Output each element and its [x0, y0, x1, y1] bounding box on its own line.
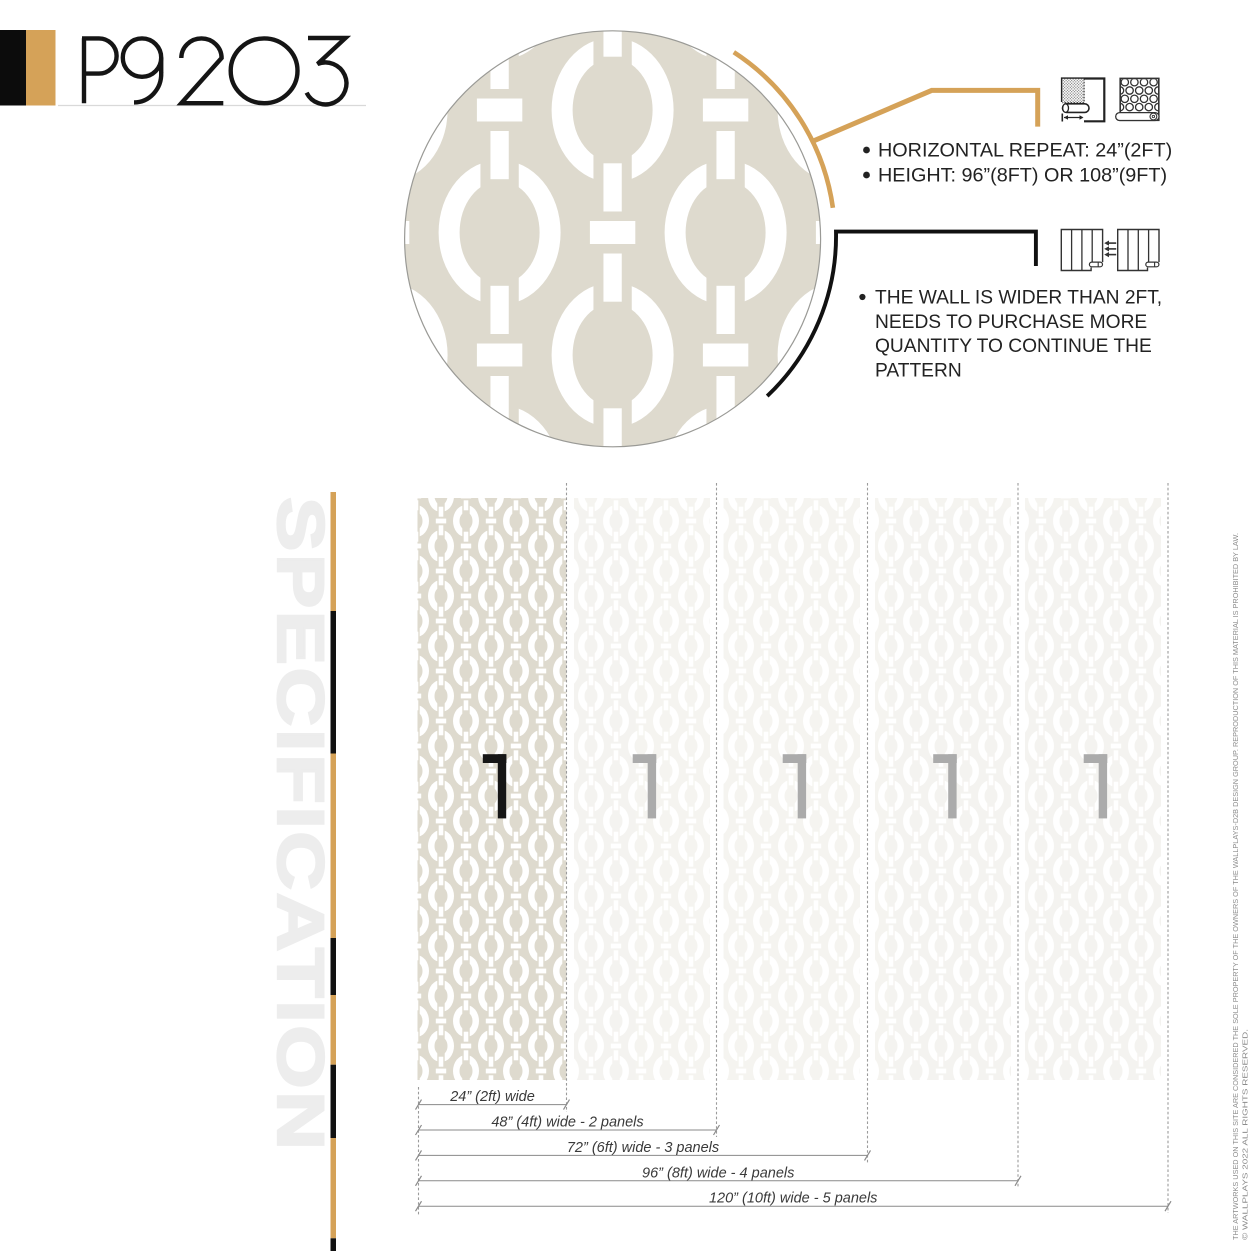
svg-text:72” (6ft) wide - 3 panels: 72” (6ft) wide - 3 panels [567, 1140, 719, 1156]
svg-text:© WALLPLAYS 2022 ALL RIGHTS RE: © WALLPLAYS 2022 ALL RIGHTS RESERVED. [1241, 1029, 1250, 1240]
svg-text:SPECIFICATION: SPECIFICATION [264, 497, 338, 1153]
svg-text:24” (2ft) wide: 24” (2ft) wide [449, 1089, 535, 1105]
svg-text:THE WALL IS WIDER THAN 2FT,: THE WALL IS WIDER THAN 2FT, [875, 288, 1162, 309]
svg-text:120” (10ft) wide - 5 panels: 120” (10ft) wide - 5 panels [709, 1191, 877, 1207]
svg-text:PATTERN: PATTERN [875, 360, 962, 381]
svg-text:HORIZONTAL REPEAT: 24”(2FT): HORIZONTAL REPEAT: 24”(2FT) [878, 140, 1172, 162]
svg-text:96” (8ft) wide - 4 panels: 96” (8ft) wide - 4 panels [642, 1165, 794, 1181]
svg-text:HEIGHT: 96”(8FT) OR 108”(9FT): HEIGHT: 96”(8FT) OR 108”(9FT) [878, 165, 1167, 187]
svg-text:THE ARTWORKS USED ON THIS SITE: THE ARTWORKS USED ON THIS SITE ARE CONSI… [1231, 533, 1240, 1240]
svg-text:QUANTITY TO CONTINUE THE: QUANTITY TO CONTINUE THE [875, 336, 1152, 357]
svg-text:NEEDS TO PURCHASE MORE: NEEDS TO PURCHASE MORE [875, 312, 1147, 333]
svg-text:48” (4ft) wide - 2 panels: 48” (4ft) wide - 2 panels [491, 1115, 643, 1131]
